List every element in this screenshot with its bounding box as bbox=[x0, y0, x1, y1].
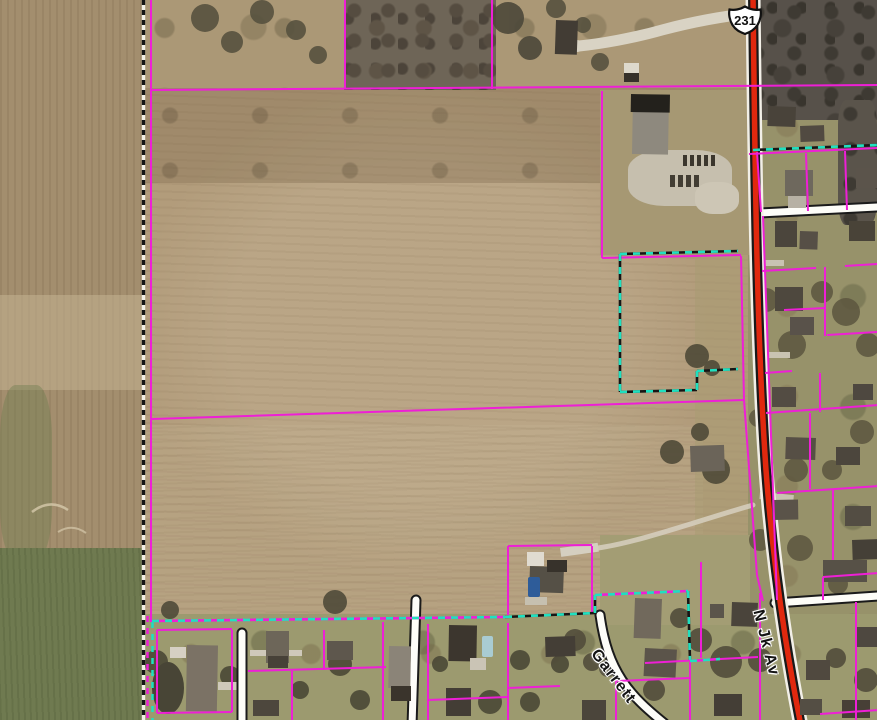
highway-route-number: 231 bbox=[727, 7, 763, 33]
map-canvas[interactable]: 231 N Jk Av Garrett bbox=[0, 0, 877, 720]
us-route-shield: 231 bbox=[727, 5, 763, 35]
selected-parcel-outline bbox=[0, 0, 877, 720]
